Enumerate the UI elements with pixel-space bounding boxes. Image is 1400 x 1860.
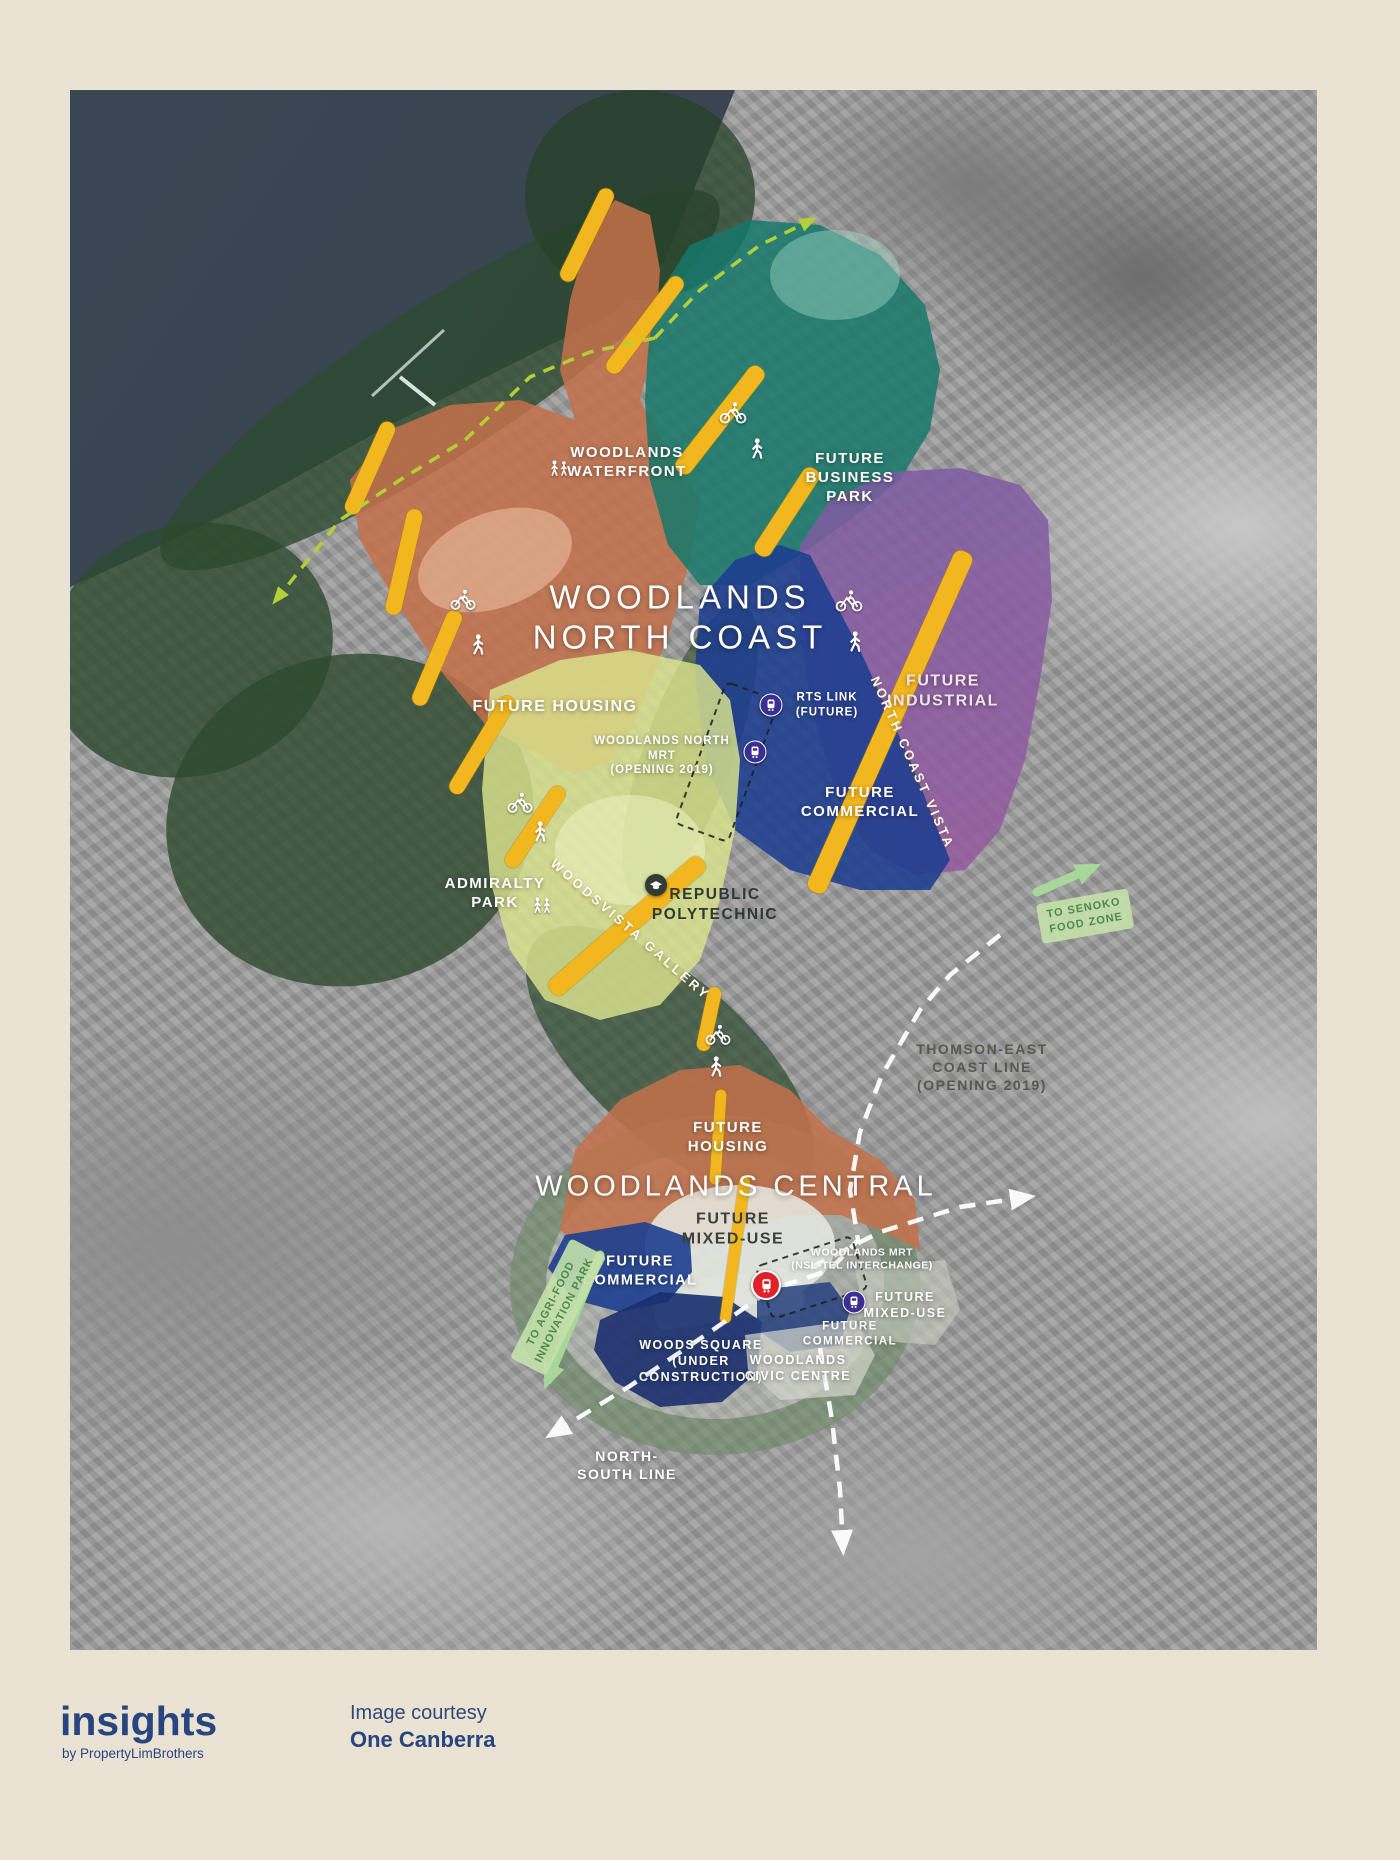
masterplan-map: WOODLANDS WATERFRONT FUTURE BUSINESS PAR…	[70, 90, 1317, 1650]
pedestrian-icon	[471, 634, 485, 663]
label-woodlands-north-mrt: WOODLANDS NORTH MRT (OPENING 2019)	[594, 734, 730, 778]
label-north-south-line: NORTH- SOUTH LINE	[577, 1448, 677, 1484]
pedestrian-icon	[750, 438, 764, 467]
label-future-industrial: FUTURE INDUSTRIAL	[887, 672, 999, 713]
label-future-commercial-central-right: FUTURE COMMERCIAL	[803, 1319, 897, 1348]
insights-logo: insights	[60, 1698, 217, 1745]
cyclist-icon	[718, 401, 748, 429]
image-courtesy-source: One Canberra	[350, 1727, 496, 1753]
image-courtesy-label: Image courtesy	[350, 1702, 487, 1725]
label-woodlands-mrt: WOODLANDS MRT (NSL-TEL INTERCHANGE)	[791, 1247, 933, 1274]
cyclist-icon	[834, 589, 864, 617]
label-woodlands-waterfront: WOODLANDS WATERFRONT	[567, 443, 687, 481]
label-republic-polytechnic: REPUBLIC POLYTECHNIC	[652, 885, 778, 925]
label-woodlands-civic-centre: WOODLANDS CIVIC CENTRE	[745, 1352, 851, 1384]
pedestrian-icon	[533, 821, 547, 850]
guide-lines-overlay	[70, 90, 1317, 1650]
rts-station-icon	[760, 694, 783, 717]
label-woodlands-central: WOODLANDS CENTRAL	[535, 1168, 937, 1205]
label-future-mixed-use-central: FUTURE MIXED-USE	[682, 1210, 784, 1251]
label-future-mixed-use-east: FUTURE MIXED-USE	[864, 1289, 947, 1321]
cyclist-icon	[506, 792, 534, 819]
insights-logo-subtitle: by PropertyLimBrothers	[62, 1746, 204, 1761]
pedestrian-icon	[709, 1056, 723, 1085]
tel-station-icon	[843, 1291, 866, 1314]
pedestrian-icon	[848, 631, 862, 660]
label-future-commercial-north: FUTURE COMMERCIAL	[801, 783, 919, 821]
label-future-housing-north: FUTURE HOUSING	[473, 697, 638, 717]
label-woodlands-north-coast: WOODLANDS NORTH COAST	[533, 577, 828, 656]
label-future-business-park: FUTURE BUSINESS PARK	[806, 449, 895, 507]
label-rts-link: RTS LINK (FUTURE)	[796, 690, 858, 719]
woodlands-north-mrt-icon	[744, 741, 767, 764]
woodlands-interchange-mrt-icon	[751, 1270, 781, 1300]
label-future-housing-central: FUTURE HOUSING	[688, 1118, 769, 1156]
cyclist-icon	[449, 589, 477, 616]
label-thomson-east-coast-line: THOMSON-EAST COAST LINE (OPENING 2019)	[916, 1041, 1048, 1095]
cyclist-icon	[704, 1024, 732, 1051]
label-admiralty-park: ADMIRALTY PARK	[445, 874, 546, 912]
